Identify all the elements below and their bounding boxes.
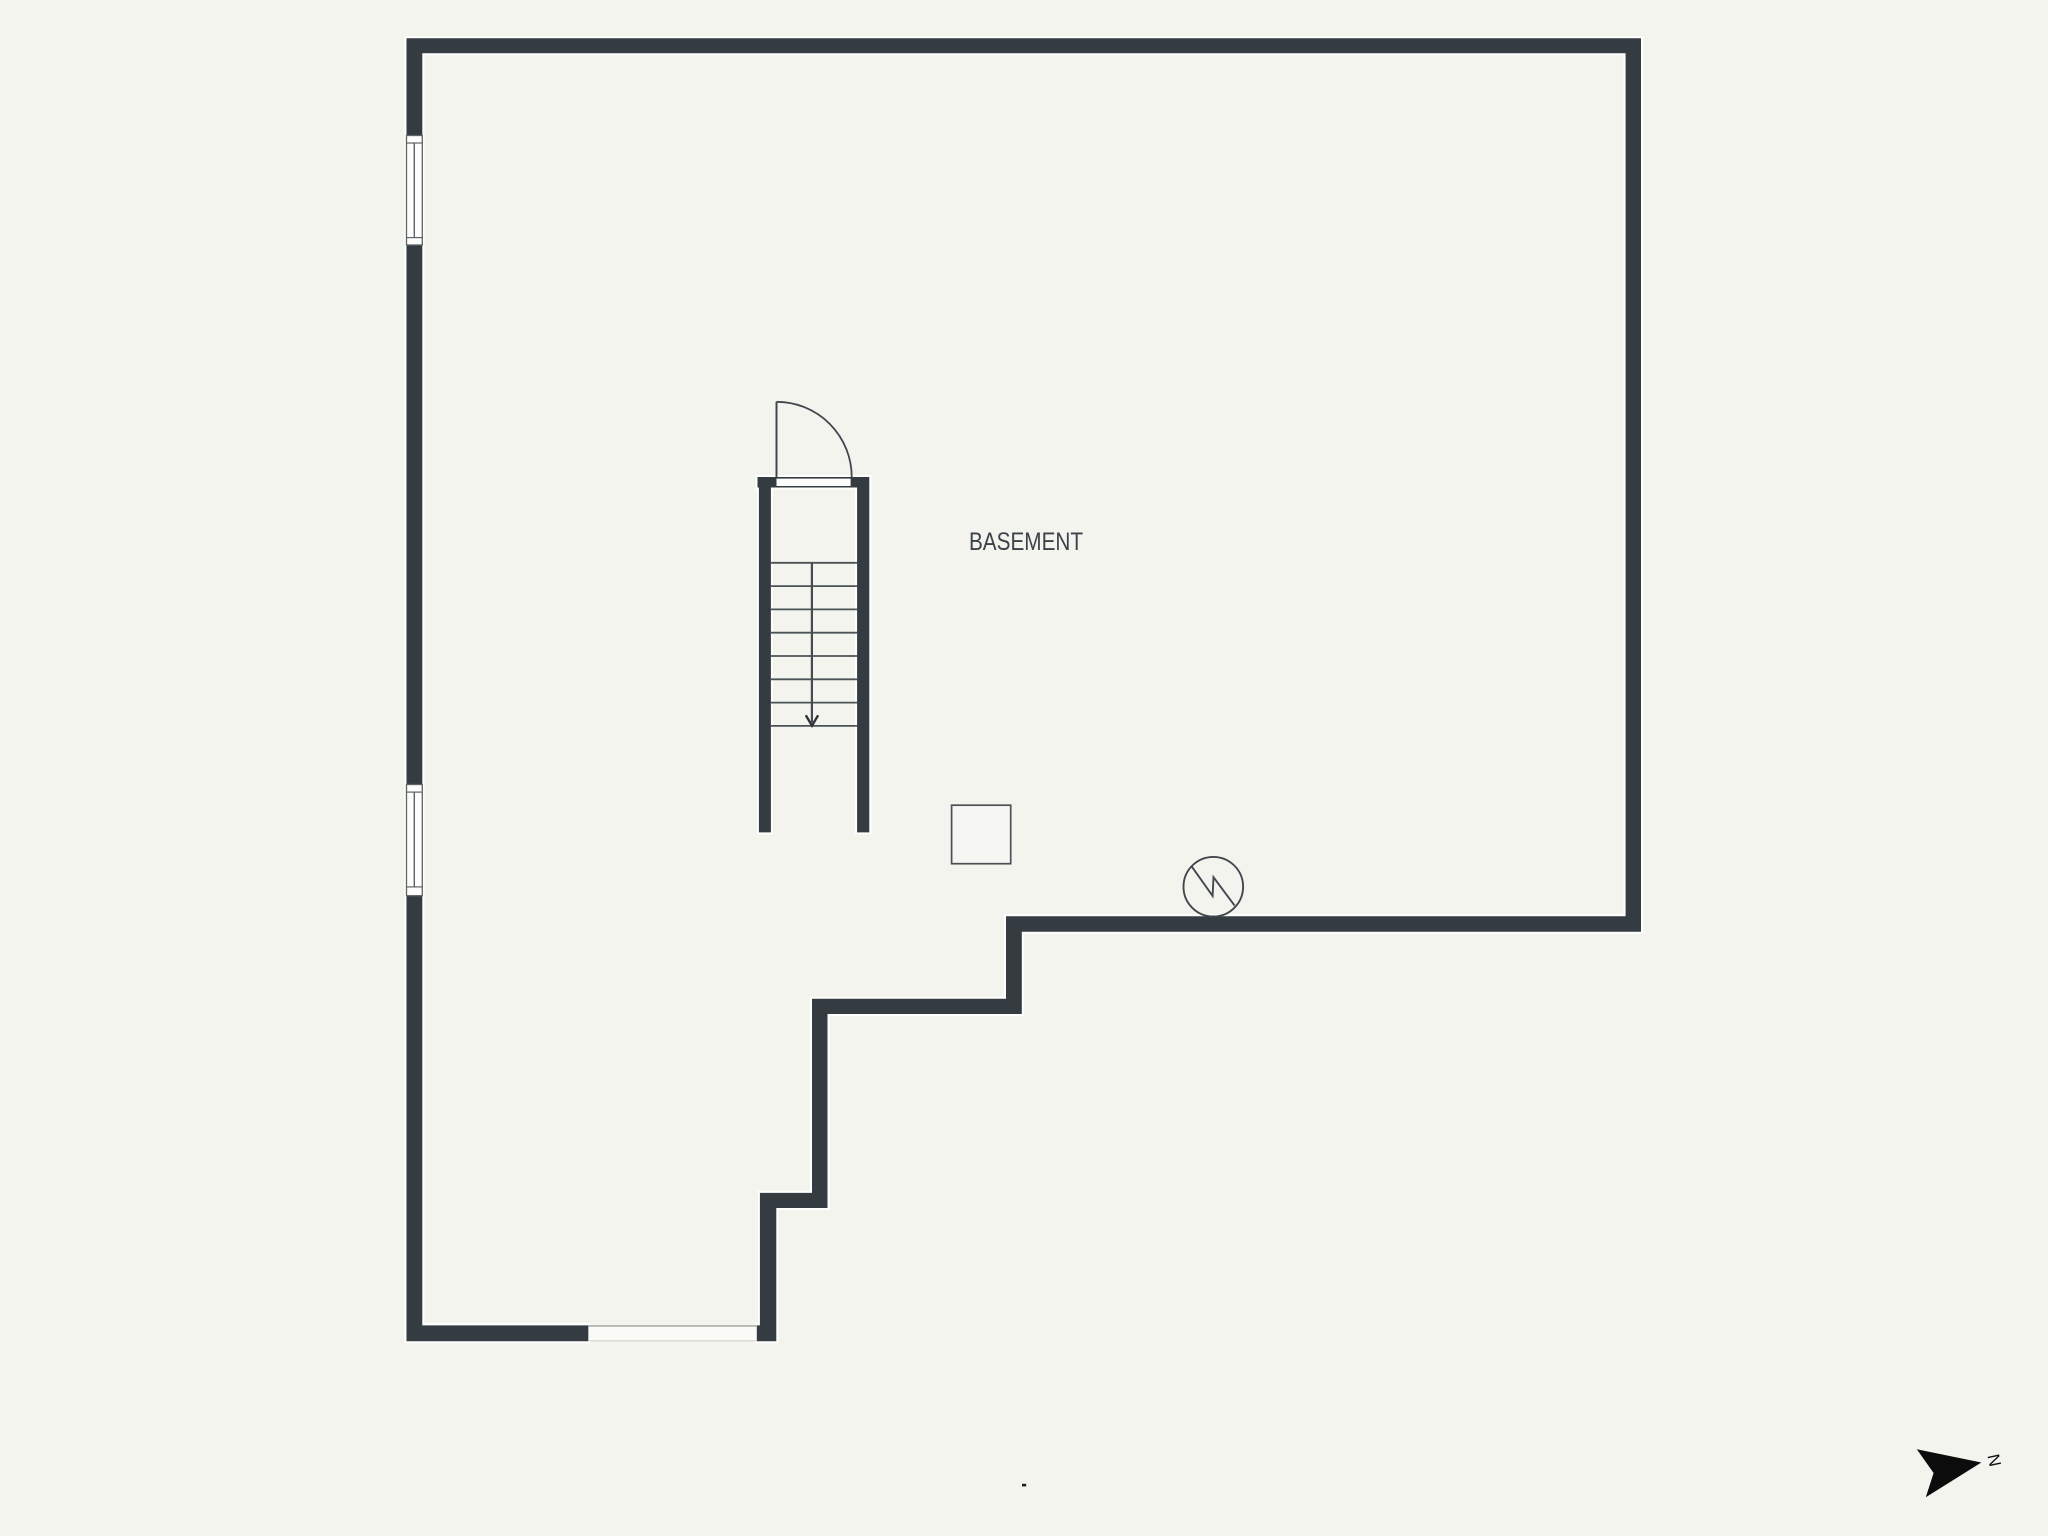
svg-text:BASEMENT: BASEMENT	[969, 527, 1083, 555]
